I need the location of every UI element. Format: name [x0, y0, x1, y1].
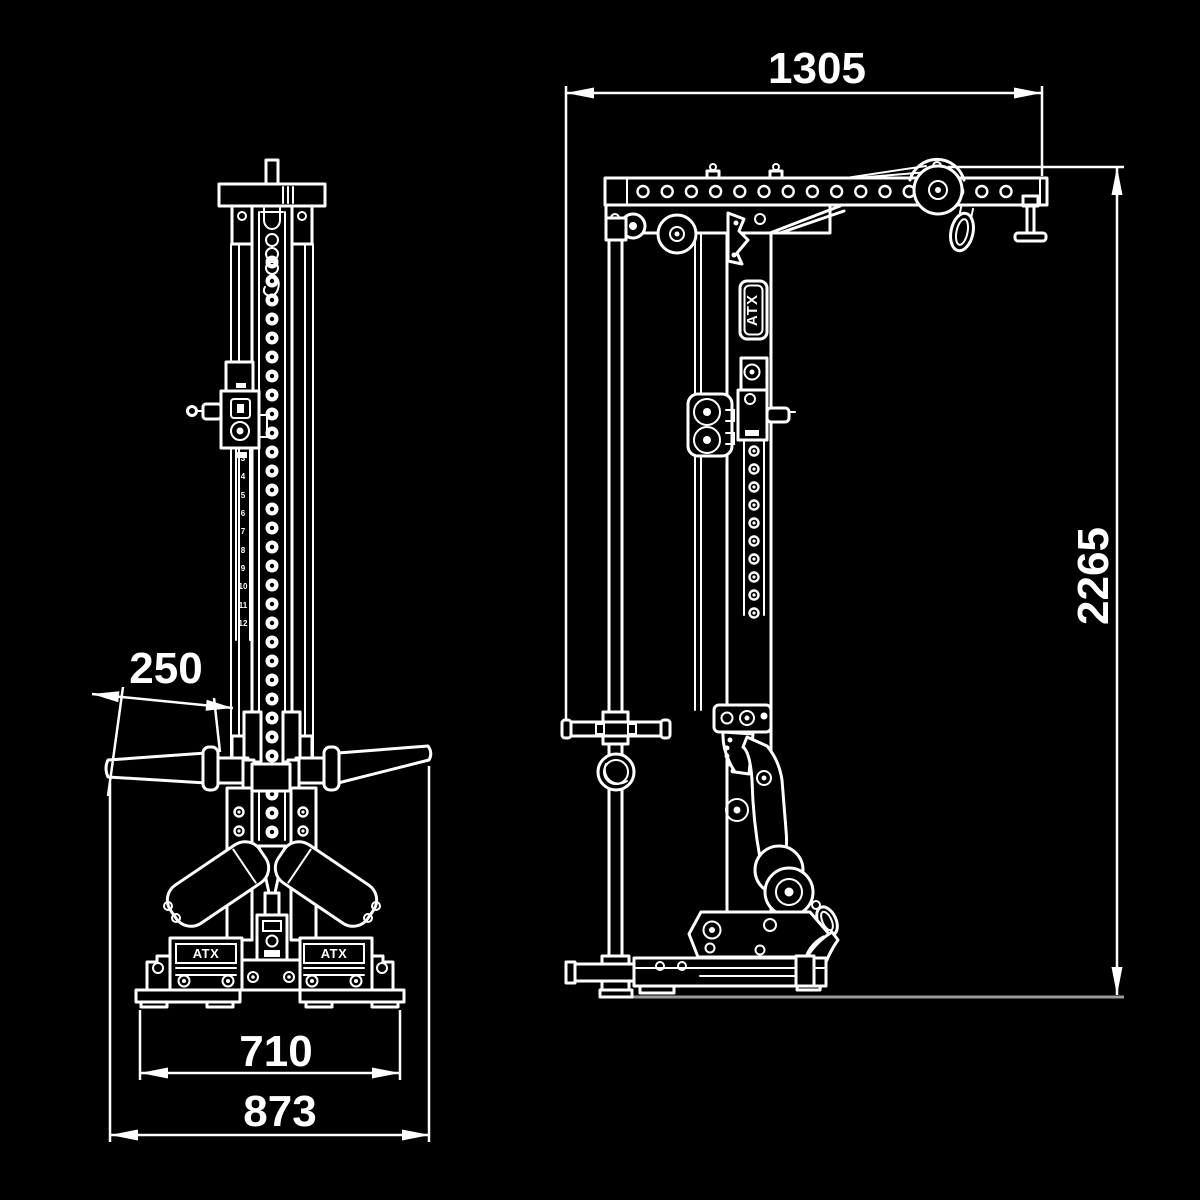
dimension-inner-base-width: 710	[140, 1010, 400, 1080]
arrowhead-down-icon	[1112, 967, 1123, 995]
strap-neck	[265, 893, 279, 917]
dim-label-710: 710	[239, 1027, 312, 1076]
right-base-rail	[300, 990, 404, 1002]
scale-number: 11	[239, 601, 248, 610]
right-grip	[338, 746, 431, 783]
front-elevation: 3 4 5 6 7 8 9 10 11 12	[106, 160, 431, 1007]
left-base-rail	[136, 990, 240, 1002]
scale-number: 5	[241, 491, 246, 500]
scale-number: 8	[241, 546, 246, 555]
front-top-beam	[219, 184, 325, 206]
side-elevation: ATX	[562, 159, 1124, 997]
bottom-pulley-block	[257, 915, 287, 962]
scale-number: 9	[241, 564, 246, 573]
dim-label-873: 873	[243, 1087, 316, 1136]
side-adjustment-carriage	[738, 390, 795, 440]
arrowhead-right-icon	[1014, 88, 1042, 99]
scale-number: 12	[239, 619, 248, 628]
cable-trolley	[688, 394, 734, 456]
dim-label-250: 250	[129, 644, 202, 693]
left-grip	[106, 753, 206, 783]
bottom-channel	[634, 956, 826, 993]
pulley-bracket	[606, 205, 844, 253]
atx-logo-left: ATX	[193, 946, 220, 961]
dimension-drawing: 3 4 5 6 7 8 9 10 11 12	[0, 0, 1200, 1200]
arrowhead-right-icon	[402, 1130, 430, 1141]
dimension-top-arm-length: 1305	[566, 44, 1042, 720]
arrowhead-right-icon	[372, 1068, 400, 1079]
side-pull-pin	[767, 408, 789, 422]
scale-number: 10	[239, 582, 248, 591]
dim-label-2265: 2265	[1069, 527, 1118, 625]
arrowhead-left-icon	[140, 1068, 168, 1079]
center-base-plate	[242, 960, 300, 990]
dimension-overall-height: 2265	[948, 167, 1124, 995]
cable-guide-rod	[695, 233, 701, 710]
atx-logo-side: ATX	[744, 294, 761, 326]
right-flange	[324, 747, 339, 790]
handle-center-block	[252, 764, 290, 791]
atx-badge: ATX	[740, 281, 767, 339]
left-flange	[203, 747, 218, 790]
atx-logo-right: ATX	[321, 946, 348, 961]
scale-number: 4	[241, 472, 246, 481]
top-stub	[266, 160, 278, 186]
scale-number: 3	[241, 454, 246, 463]
technical-drawing-canvas: 3 4 5 6 7 8 9 10 11 12	[0, 0, 1200, 1200]
t-handle-bar	[562, 722, 670, 736]
scale-number: 6	[241, 509, 246, 518]
dim-label-1305: 1305	[768, 44, 866, 93]
arrowhead-left-icon	[92, 691, 119, 702]
arrowhead-up-icon	[1112, 167, 1123, 195]
scale-number: 7	[241, 527, 246, 536]
carabiner-top	[947, 205, 978, 253]
arrowhead-right-icon	[206, 700, 233, 711]
pull-pin-knob	[203, 404, 221, 419]
lever-mechanism	[689, 705, 841, 990]
front-post-assembly	[562, 218, 670, 997]
arrowhead-left-icon	[110, 1130, 138, 1141]
arrowhead-left-icon	[566, 88, 594, 99]
